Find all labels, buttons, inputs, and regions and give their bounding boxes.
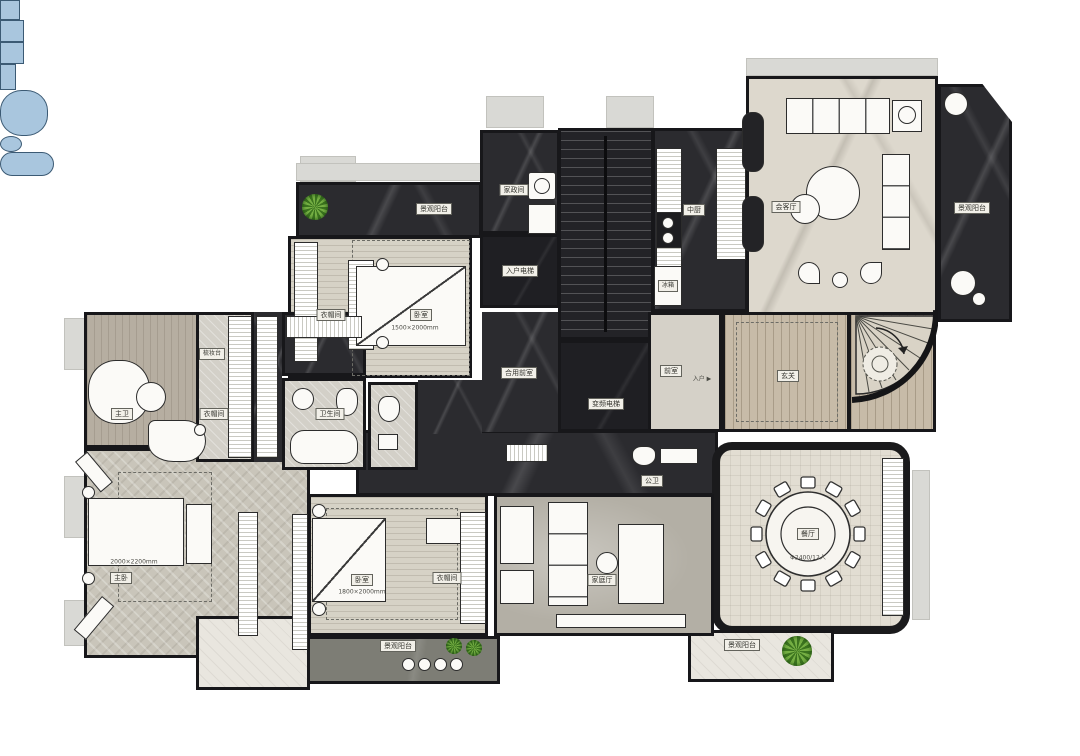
toilet [378,396,400,422]
planter [944,92,968,116]
bay-window [746,58,938,76]
label-kitchen: 中厨 [683,204,705,216]
fireplace-niche [742,196,764,252]
label-housekeeping: 家政间 [500,184,529,196]
bay-window [912,470,930,620]
label-closet-top: 衣帽间 [317,309,346,321]
label-master-closet: 衣帽间 [200,408,229,420]
side-table [832,272,848,288]
bay-window [296,163,482,181]
wardrobe [228,316,252,458]
kitchen-sink [0,42,24,64]
label-foyer: 玄关 [777,370,799,382]
label-living: 会客厅 [772,201,801,213]
vanity [660,448,698,464]
tv-cabinet [238,512,258,636]
stool [418,658,431,671]
faucet [194,424,206,436]
kitchen-sink [0,20,24,42]
stool [434,658,447,671]
planter [972,292,986,306]
sink [292,388,314,410]
plant [302,194,328,220]
stair-divider [604,136,607,332]
sideboard [882,458,904,616]
sink [378,434,398,450]
side-table [596,552,618,574]
wardrobe [256,316,278,458]
label-fridge: 冰箱 [658,280,678,292]
nightstand [376,258,389,271]
burner [662,232,674,244]
label-master-bedroom: 主卧 [110,572,132,584]
floor-plan: 景观阳台 衣帽间 卧室 1500×2000mm 家政间 入户电梯 变频电梯 冰箱… [0,0,1080,756]
soaking-tub [136,382,166,412]
ottoman [500,570,534,604]
sofa [786,98,890,134]
bench [426,518,462,544]
laundry-sink [528,204,556,234]
plant [466,640,482,656]
burner [662,217,674,229]
label-balcony-bottom-right: 景观阳台 [724,639,760,651]
bathtub-water [0,90,48,136]
bay-window [64,476,86,538]
console-table [506,444,548,462]
table-lamp [898,106,916,124]
bed-post [82,572,95,585]
toilet [632,446,656,466]
bed [88,498,184,566]
label-bathroom: 卫生间 [316,408,345,420]
corridor [418,380,482,434]
fireplace-niche [742,112,764,172]
bathtub-water [0,152,54,176]
label-balcony-bottom-center: 景观阳台 [380,640,416,652]
label-anteroom: 前室 [660,365,682,377]
nightstand [312,602,326,616]
label-family: 家庭厅 [588,574,617,586]
master-bed-size: 2000×2200mm [110,559,157,566]
dining-table-spec: Φ2400/12人 [790,555,826,562]
label-powder-room: 公卫 [641,475,663,487]
wardrobe [294,242,318,362]
spiral-staircase [846,308,938,434]
bay-window [606,96,654,128]
label-master-bath: 主卫 [111,408,133,420]
sink-basin [0,136,22,152]
label-elevator: 变频电梯 [588,398,624,410]
room-wc [368,382,418,470]
sofa [882,154,910,250]
bed-size-top: 1500×2000mm [391,325,438,332]
planter [950,270,976,296]
label-home-elevator: 入户电梯 [502,265,538,277]
bed-size-bottom: 1800×2000mm [338,589,385,596]
label-dressing-table: 梳妆台 [199,348,225,360]
plant [446,638,462,654]
armchair [798,262,820,284]
bathtub [290,430,358,464]
nightstand [376,336,389,349]
tv-cabinet [292,514,308,650]
armchair [860,262,882,284]
chaise [500,506,534,564]
wardrobe [460,512,486,624]
label-shared-anteroom: 合用前室 [501,367,537,379]
stool [402,658,415,671]
nightstand [312,504,326,518]
plant [782,636,812,666]
foot-bench [186,504,212,564]
label-dining: 餐厅 [797,528,819,540]
daybed [618,524,664,604]
label-balcony-right: 景观阳台 [954,202,990,214]
label-closet-bottom: 衣帽间 [433,572,462,584]
balcony-bottom-right [688,630,834,682]
shower [0,64,16,90]
bed-post [82,486,95,499]
bay-window [486,96,544,128]
bay-window [64,318,86,370]
room-elevator [558,340,654,432]
sink-basin [0,0,20,20]
bed [356,266,466,346]
tv-console [556,614,686,628]
label-balcony-top-left: 景观阳台 [416,203,452,215]
sofa [548,502,588,606]
washer-drum [534,178,550,194]
label-bedroom-top: 卧室 [410,309,432,321]
label-bedroom-bottom: 卧室 [351,574,373,586]
stool [450,658,463,671]
entry-arrow: 入户 ▶ [693,376,712,383]
